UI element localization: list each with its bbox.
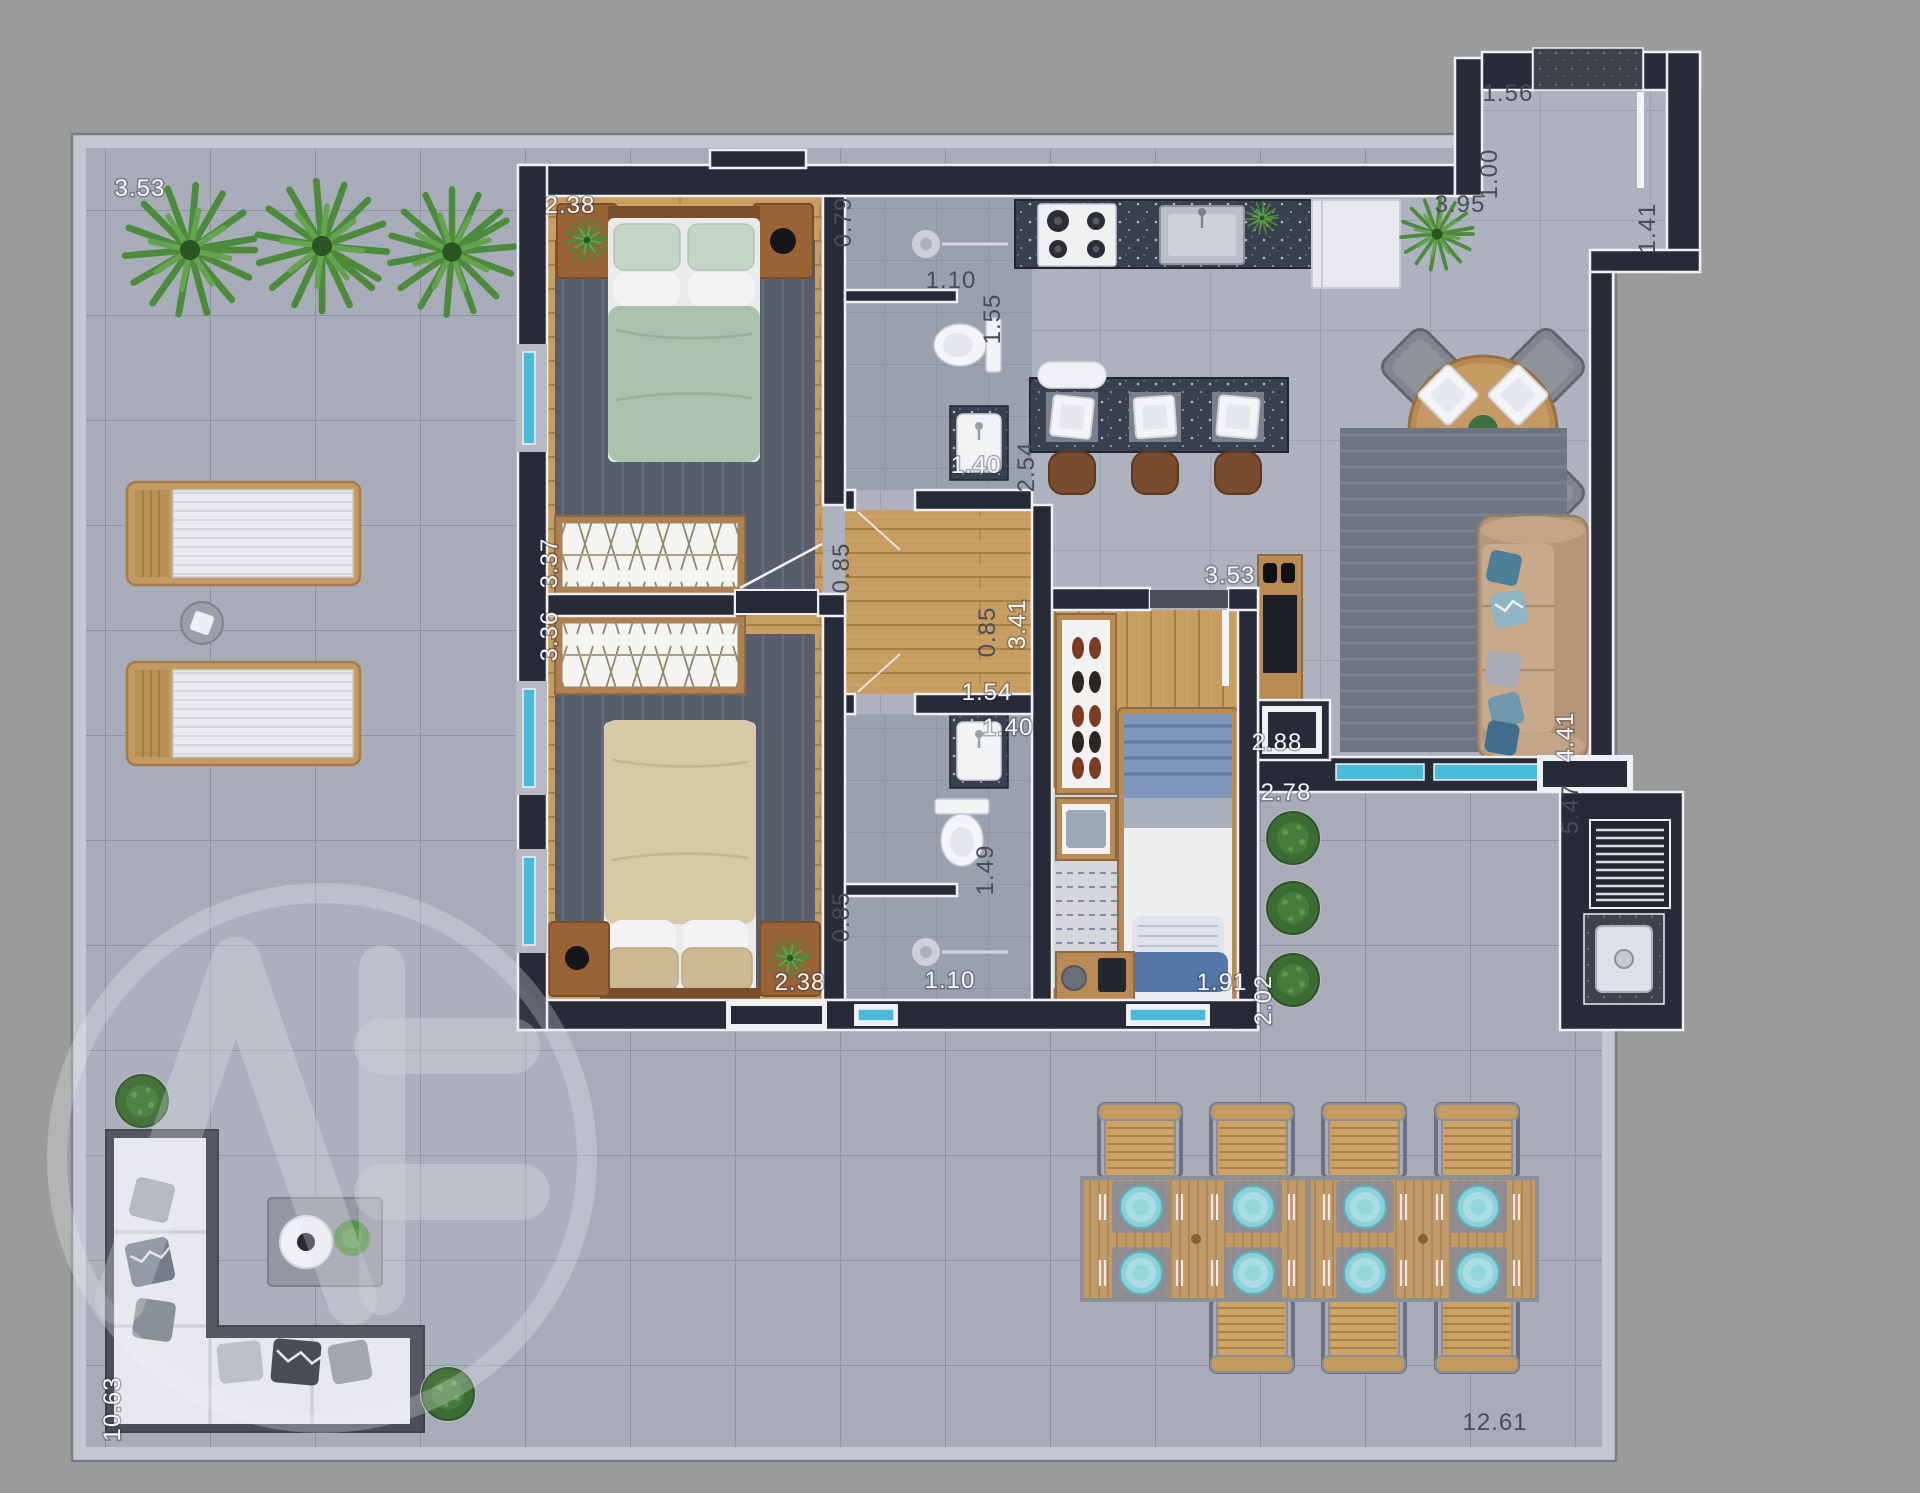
dimension-label: 1.10 bbox=[926, 267, 977, 294]
dimension-label: 3.53 bbox=[1205, 562, 1256, 589]
window bbox=[1130, 1009, 1206, 1021]
shower-partition bbox=[845, 884, 957, 896]
shoe-rack bbox=[1056, 614, 1116, 794]
plate-icon bbox=[1324, 1181, 1406, 1233]
window bbox=[1434, 764, 1552, 780]
outdoor-chair bbox=[1323, 1104, 1405, 1178]
dimension-label: 2.78 bbox=[1261, 779, 1312, 806]
plate-icon bbox=[1437, 1247, 1519, 1299]
dimension-label: 1.41 bbox=[1634, 203, 1661, 254]
ac-condenser-grill bbox=[1590, 820, 1670, 908]
single-bed-blue bbox=[1118, 708, 1238, 1008]
window bbox=[858, 1009, 894, 1021]
tv-icon bbox=[1263, 595, 1297, 673]
table-lamp-icon bbox=[770, 228, 796, 254]
dimension-label: 1.40 bbox=[983, 714, 1034, 741]
plate-icon bbox=[1212, 1247, 1294, 1299]
window bbox=[523, 689, 535, 787]
kitchen-sink-icon bbox=[1160, 206, 1244, 264]
refrigerator-icon bbox=[1312, 200, 1400, 288]
dimension-label: 2.38 bbox=[545, 192, 596, 219]
table-lamp-icon bbox=[565, 946, 589, 970]
dimension-label: 12.61 bbox=[1462, 1409, 1527, 1436]
plate-icon bbox=[1437, 1181, 1519, 1233]
bedroom-door-leaf bbox=[735, 590, 818, 614]
dimension-label: 5.47 bbox=[1557, 784, 1584, 835]
window bbox=[731, 1006, 822, 1024]
dimension-label: 0.85 bbox=[828, 892, 855, 943]
sun-lounger bbox=[127, 662, 360, 765]
clothes-shelf bbox=[1056, 798, 1116, 860]
window bbox=[1336, 764, 1424, 780]
plate-icon bbox=[1324, 1247, 1406, 1299]
throw-pillow bbox=[1483, 719, 1520, 756]
entry-door-leaf bbox=[1637, 92, 1644, 188]
window bbox=[1543, 761, 1627, 787]
watermark-logo bbox=[57, 893, 587, 1423]
sun-lounger bbox=[127, 482, 360, 585]
dimension-label: 1.00 bbox=[1476, 149, 1503, 200]
desk bbox=[1056, 952, 1134, 1000]
wall bbox=[1667, 52, 1700, 272]
dimension-label: 1.54 bbox=[962, 679, 1013, 706]
dimension-label: 2.88 bbox=[1252, 729, 1303, 756]
wall bbox=[1238, 588, 1258, 1030]
bedroom3-door-leaf bbox=[1222, 610, 1229, 686]
outdoor-chair bbox=[1211, 1104, 1293, 1178]
entry-doormat bbox=[1533, 48, 1643, 90]
dimension-label: 3.41 bbox=[1004, 599, 1031, 650]
double-bed-beige bbox=[600, 720, 760, 1000]
shrub-icon bbox=[1265, 810, 1321, 866]
dimension-label: 1.56 bbox=[1483, 80, 1534, 107]
washing-machine-icon bbox=[1584, 914, 1664, 1004]
dimension-label: 1.40 bbox=[951, 452, 1002, 479]
game-controller-icon bbox=[1263, 563, 1277, 583]
wall bbox=[845, 490, 855, 510]
dimension-label: 0.85 bbox=[974, 607, 1001, 658]
outdoor-chair bbox=[1099, 1104, 1181, 1178]
plate-icon bbox=[1100, 1247, 1182, 1299]
wall bbox=[1590, 272, 1613, 757]
dimension-label: 2.38 bbox=[775, 969, 826, 996]
floor-plan-canvas: 3.532.380.791.101.551.402.543.951.001.56… bbox=[0, 0, 1920, 1493]
dimension-label: 4.41 bbox=[1552, 712, 1579, 763]
throw-pillow bbox=[1489, 589, 1528, 628]
plate-icon bbox=[1100, 1181, 1182, 1233]
dimension-label: 1.55 bbox=[979, 294, 1006, 345]
dimension-label: 2.54 bbox=[1013, 442, 1040, 493]
dimension-label: 3.37 bbox=[536, 538, 563, 589]
window bbox=[523, 352, 535, 444]
outdoor-chair bbox=[1323, 1298, 1405, 1372]
game-controller-icon bbox=[1281, 563, 1295, 583]
dimension-label: 2.02 bbox=[1250, 975, 1277, 1026]
side-table bbox=[181, 602, 223, 644]
dimension-label: 10.63 bbox=[99, 1376, 126, 1441]
wardrobe-closet bbox=[555, 516, 745, 594]
outdoor-chair bbox=[1436, 1298, 1518, 1372]
wall-vent bbox=[710, 150, 806, 168]
dimension-label: 1.10 bbox=[925, 967, 976, 994]
shrub-icon bbox=[1265, 880, 1321, 936]
dimension-label: 1.49 bbox=[972, 845, 999, 896]
floor-plan: 3.532.380.791.101.551.402.543.951.001.56… bbox=[0, 0, 1920, 1493]
wall bbox=[845, 694, 855, 714]
dimension-label: 0.79 bbox=[830, 197, 857, 248]
wall bbox=[518, 165, 1455, 196]
double-bed-green bbox=[608, 206, 760, 462]
wall bbox=[818, 594, 845, 616]
dimension-label: 3.36 bbox=[536, 611, 563, 662]
wardrobe-closet bbox=[555, 616, 745, 694]
dimension-label: 1.91 bbox=[1197, 969, 1248, 996]
wall bbox=[547, 594, 735, 616]
window bbox=[523, 857, 535, 945]
outdoor-chair bbox=[1211, 1298, 1293, 1372]
throw-pillow bbox=[1484, 650, 1522, 688]
wall bbox=[1228, 588, 1258, 610]
throw-pillow bbox=[1485, 549, 1523, 587]
door-threshold bbox=[1150, 590, 1228, 608]
outdoor-chair bbox=[1436, 1104, 1518, 1178]
dimension-label: 3.53 bbox=[115, 175, 166, 202]
bar-stools bbox=[1049, 452, 1261, 494]
wall bbox=[1032, 505, 1052, 1000]
dimension-label: 0.85 bbox=[828, 543, 855, 594]
plate-icon bbox=[1212, 1181, 1294, 1233]
bedroom2 bbox=[549, 616, 820, 1000]
stove-icon bbox=[1038, 204, 1116, 266]
